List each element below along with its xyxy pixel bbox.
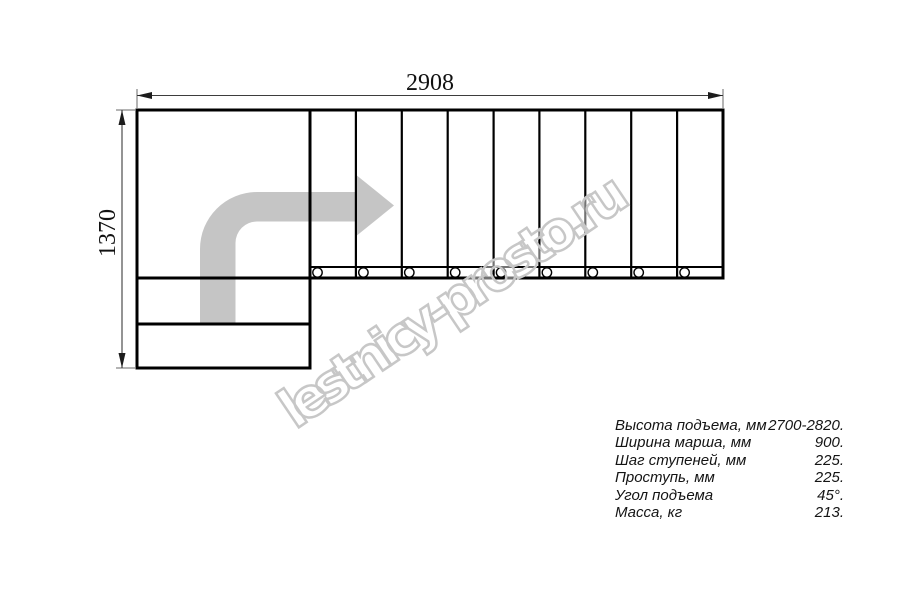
spec-label: Масса, кг	[615, 504, 682, 521]
spec-table: Высота подъема, мм 2700-2820. Ширина мар…	[615, 417, 844, 521]
dim-arrowhead-left	[137, 92, 152, 99]
dim-arrowhead-bottom	[119, 353, 126, 368]
dim-arrowhead-top	[119, 110, 126, 125]
width-dimension-label: 2908	[406, 70, 454, 96]
spec-label: Шаг ступеней, мм	[615, 452, 746, 469]
spec-label: Проступь, мм	[615, 469, 715, 486]
mount-circle	[313, 268, 322, 277]
lower-step-1	[137, 324, 310, 368]
spec-row: Высота подъема, мм 2700-2820.	[615, 417, 844, 434]
spec-row: Масса, кг 213.	[615, 504, 844, 521]
spec-value: 45°.	[817, 487, 844, 504]
spec-label: Угол подъема	[615, 487, 713, 504]
height-dimension-label: 1370	[95, 209, 121, 257]
spec-value: 225.	[815, 452, 844, 469]
spec-row: Проступь, мм 225.	[615, 469, 844, 486]
mount-circle	[359, 268, 368, 277]
spec-value: 213.	[815, 504, 844, 521]
spec-value: 2700-2820.	[768, 417, 844, 434]
mount-circle	[634, 268, 643, 277]
spec-label: Ширина марша, мм	[615, 434, 751, 451]
spec-label: Высота подъема, мм	[615, 417, 767, 434]
spec-value: 900.	[815, 434, 844, 451]
direction-arrow-icon	[200, 174, 394, 325]
mount-circle	[405, 268, 414, 277]
dim-arrowhead-right	[708, 92, 723, 99]
spec-row: Ширина марша, мм 900.	[615, 434, 844, 451]
mount-circle	[588, 268, 597, 277]
stair-plan-page: 2908 1370 lestnicy-prosto.ru Высота подъ…	[0, 0, 900, 600]
spec-value: 225.	[815, 469, 844, 486]
spec-row: Угол подъема 45°.	[615, 487, 844, 504]
mount-circle	[680, 268, 689, 277]
spec-row: Шаг ступеней, мм 225.	[615, 452, 844, 469]
